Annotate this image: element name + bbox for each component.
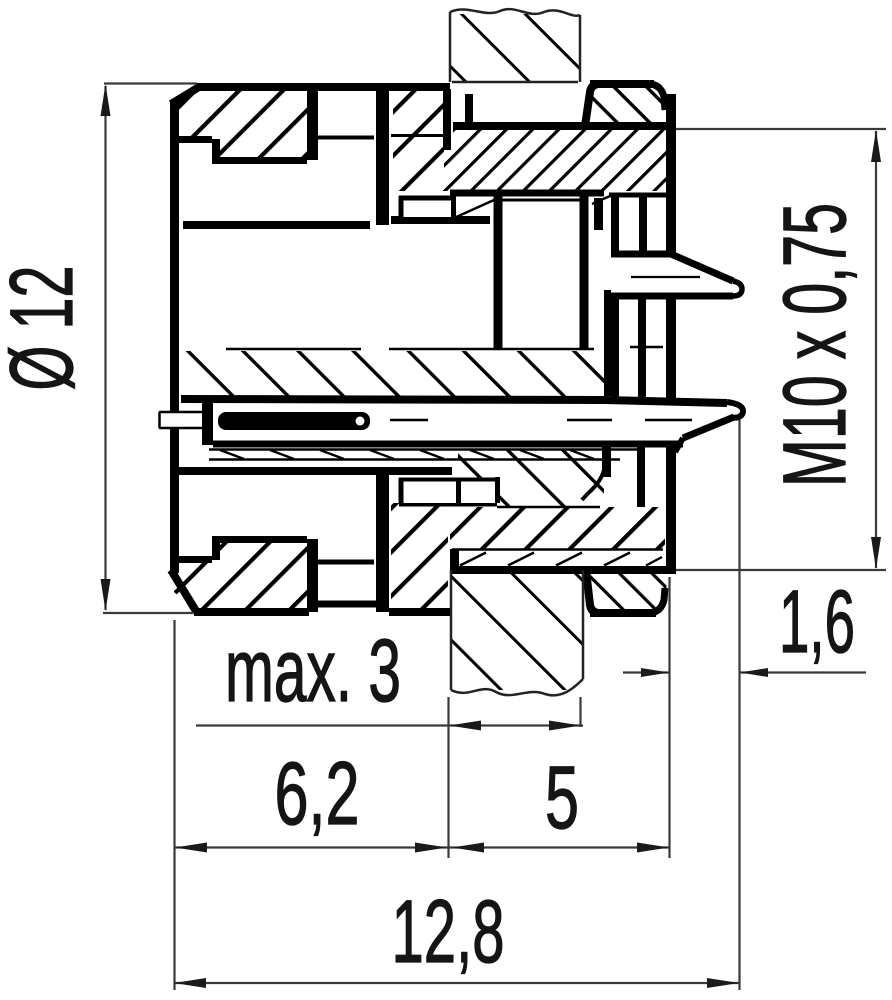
svg-text:1,6: 1,6 (779, 571, 855, 671)
svg-text:max. 3: max. 3 (225, 620, 401, 720)
svg-text:Ø 12: Ø 12 (0, 266, 91, 391)
svg-text:M10 x 0,75: M10 x 0,75 (764, 203, 864, 487)
svg-text:6,2: 6,2 (275, 743, 360, 843)
svg-text:5: 5 (545, 747, 579, 847)
svg-text:12,8: 12,8 (392, 881, 505, 981)
